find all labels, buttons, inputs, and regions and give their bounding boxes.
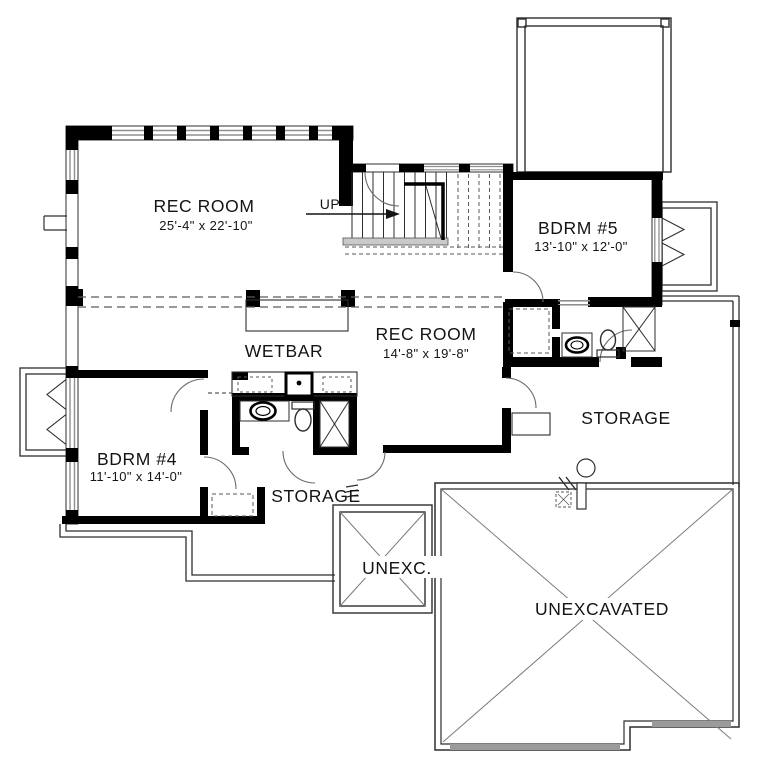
label-wetbar: WETBAR xyxy=(245,341,323,361)
toilet-1-bowl xyxy=(295,409,311,431)
bdrm5-closet-shelf xyxy=(509,309,549,353)
window-well-bdrm5 xyxy=(662,202,717,291)
dims-bdrm-5: 13'-10" x 12'-0" xyxy=(534,239,628,254)
door-wetbar-bath xyxy=(283,451,315,483)
label-bdrm-4: BDRM #4 xyxy=(97,449,177,469)
label-bdrm-5: BDRM #5 xyxy=(538,218,618,238)
up-arrow-head xyxy=(386,209,400,219)
dims-bdrm-4: 11'-10" x 14'-0" xyxy=(90,469,183,484)
floor-plan-drawing: REC ROOM 25'-4" x 22'-10" REC ROOM 14'-8… xyxy=(0,0,761,768)
stair-rail xyxy=(404,184,443,240)
sink-1 xyxy=(251,403,276,420)
stairs xyxy=(306,172,503,254)
room-labels: REC ROOM 25'-4" x 22'-10" REC ROOM 14'-8… xyxy=(90,196,671,619)
door-rec2-storage xyxy=(357,452,385,480)
floor-plan-sheet: REC ROOM 25'-4" x 22'-10" REC ROOM 14'-8… xyxy=(0,0,761,768)
door-bdrm4 xyxy=(171,379,204,412)
label-unexcavated-large: UNEXCAVATED xyxy=(535,599,669,619)
foundation-vent-tick xyxy=(730,320,740,327)
sink-2 xyxy=(566,338,588,353)
mechanical-unit xyxy=(512,413,550,435)
stair-landing-edge xyxy=(343,238,448,245)
toilet-1-tank xyxy=(292,402,314,409)
sump-pit xyxy=(577,459,595,477)
window-well-bdrm4 xyxy=(20,368,68,456)
label-unexcavated-small: UNEXC. xyxy=(362,558,432,578)
footing-strip xyxy=(450,744,620,750)
label-rec-room-2: REC ROOM xyxy=(375,324,476,344)
toilet-2-bowl xyxy=(601,330,616,350)
door-bdrm4-storage xyxy=(204,457,236,489)
label-storage-right: STORAGE xyxy=(581,408,670,428)
access-notch xyxy=(577,483,586,509)
porch-above-outline xyxy=(517,18,671,172)
footing-strip xyxy=(652,721,731,727)
beam-header-outline xyxy=(246,300,348,331)
door-bdrm5 xyxy=(513,272,543,302)
door-storage-right xyxy=(506,378,536,408)
bdrm4-closet-shelf xyxy=(212,494,253,516)
beam-dashed-lines xyxy=(78,297,503,307)
dims-rec-room-main: 25'-4" x 22'-10" xyxy=(159,218,253,233)
label-storage-lower: STORAGE xyxy=(271,486,360,506)
label-stairs-up: UP xyxy=(320,196,340,212)
label-rec-room-main: REC ROOM xyxy=(153,196,254,216)
dims-rec-room-2: 14'-8" x 19'-8" xyxy=(383,346,469,361)
